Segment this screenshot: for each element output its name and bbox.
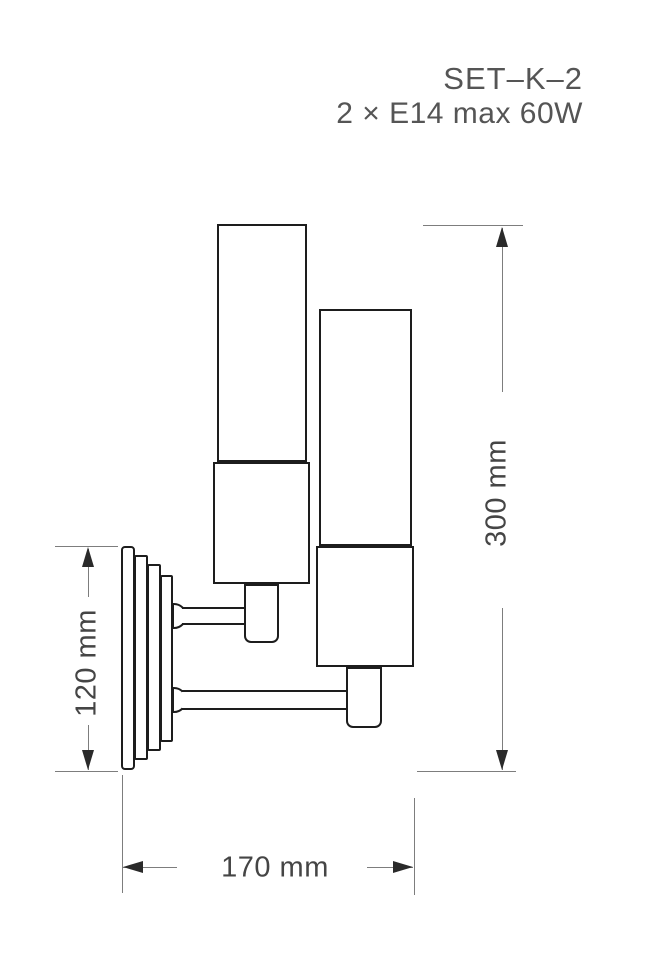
candle-sleeve-1	[244, 584, 279, 643]
dim-300-arrowhead-top	[496, 227, 508, 247]
arm-2	[182, 690, 347, 710]
glass-shade-2	[319, 309, 412, 546]
dim-300-line-lower	[502, 608, 503, 770]
dim-300-extension-line-bottom	[417, 771, 516, 772]
dim-170-extension-line-right	[414, 798, 415, 895]
candle-sleeve-2	[346, 667, 382, 728]
dim-120-arrowhead-bottom	[82, 750, 94, 770]
dim-300-arrowhead-bottom	[496, 750, 508, 770]
dim-120-label: 120 mm	[71, 609, 104, 717]
dim-300-line-upper	[502, 228, 503, 392]
dim-120-arrowhead-top	[82, 547, 94, 567]
title-block: SET–K–2 2 × E14 max 60W	[336, 62, 583, 130]
page-title: SET–K–2	[336, 62, 583, 97]
candle-socket-1	[213, 462, 310, 584]
dim-300-label: 300 mm	[481, 439, 514, 547]
dim-170-label: 170 mm	[221, 852, 329, 885]
glass-shade-1	[217, 224, 307, 462]
dim-300-extension-line-top	[423, 225, 523, 226]
wall-backplate-step-2	[134, 555, 148, 760]
dim-170-extension-line-left	[122, 775, 123, 893]
arm-1	[182, 607, 245, 625]
dim-170-arrowhead-right	[393, 861, 413, 873]
wall-backplate-step-1	[121, 546, 135, 770]
candle-socket-2	[316, 546, 414, 667]
wall-backplate-step-3	[147, 564, 161, 751]
wall-backplate-step-4	[160, 575, 173, 742]
lamp-spec-subtitle: 2 × E14 max 60W	[336, 97, 583, 131]
dim-120-extension-line-bottom	[55, 771, 118, 772]
dimension-drawing-canvas: SET–K–2 2 × E14 max 60W 300 mm 120 mm 17…	[0, 0, 663, 955]
dim-170-arrowhead-left	[123, 861, 143, 873]
